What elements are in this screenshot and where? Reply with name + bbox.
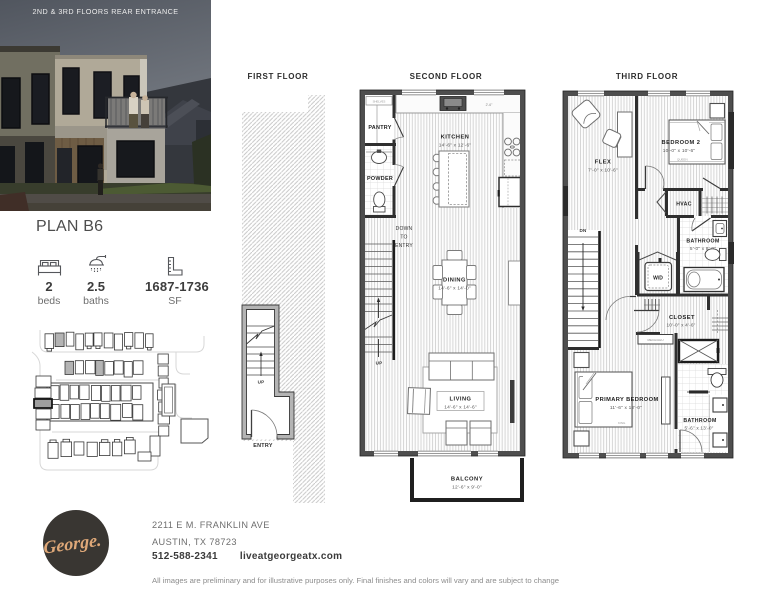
svg-text:UP: UP [376,361,383,366]
svg-text:KITCHEN: KITCHEN [441,135,470,141]
svg-text:QUEEN: QUEEN [677,158,688,162]
svg-text:BALCONY: BALCONY [451,477,483,483]
svg-text:10'-0" x 4'-6": 10'-0" x 4'-6" [666,323,695,328]
svg-text:14'-6" x 14'-0": 14'-6" x 14'-0" [438,286,471,292]
svg-text:7'-0" x 10'-6": 7'-0" x 10'-6" [588,168,618,174]
svg-text:2'-6": 2'-6" [486,103,494,107]
svg-text:BEDROOM 2: BEDROOM 2 [662,140,701,146]
svg-text:12'-6" x 9'-0": 12'-6" x 9'-0" [452,485,482,491]
svg-text:CLOSET: CLOSET [669,315,695,321]
svg-text:14'-6" x 12'-6": 14'-6" x 12'-6" [439,143,472,149]
svg-text:DINING: DINING [443,278,466,284]
svg-text:14'-6" x 14'-6": 14'-6" x 14'-6" [444,405,477,411]
svg-text:KING: KING [618,421,626,425]
svg-text:LIVING: LIVING [450,397,472,403]
svg-text:PANTRY: PANTRY [368,125,391,131]
svg-text:11'-6" x 12'-0": 11'-6" x 12'-0" [610,405,642,411]
svg-text:BATHROOM: BATHROOM [686,239,719,245]
svg-text:HVAC: HVAC [676,202,692,208]
svg-text:DN: DN [579,228,587,233]
svg-text:POWDER: POWDER [367,176,393,182]
svg-text:UP: UP [258,380,265,385]
svg-text:10'-0" x 10'-6": 10'-0" x 10'-6" [663,148,696,154]
svg-text:SHELVES: SHELVES [373,99,386,103]
svg-text:FLEX: FLEX [595,160,612,166]
svg-text:W/D: W/D [653,276,663,282]
svg-text:DOWN: DOWN [396,226,413,232]
svg-text:MECH/AHU: MECH/AHU [647,338,663,342]
svg-text:BATHROOM: BATHROOM [683,418,716,424]
svg-text:TO: TO [400,235,407,241]
svg-text:ENTRY: ENTRY [395,243,413,249]
svg-text:ENTRY: ENTRY [253,443,273,449]
svg-text:PRIMARY BEDROOM: PRIMARY BEDROOM [595,397,658,403]
svg-text:5'-6" x 13'-0": 5'-6" x 13'-0" [684,426,713,431]
